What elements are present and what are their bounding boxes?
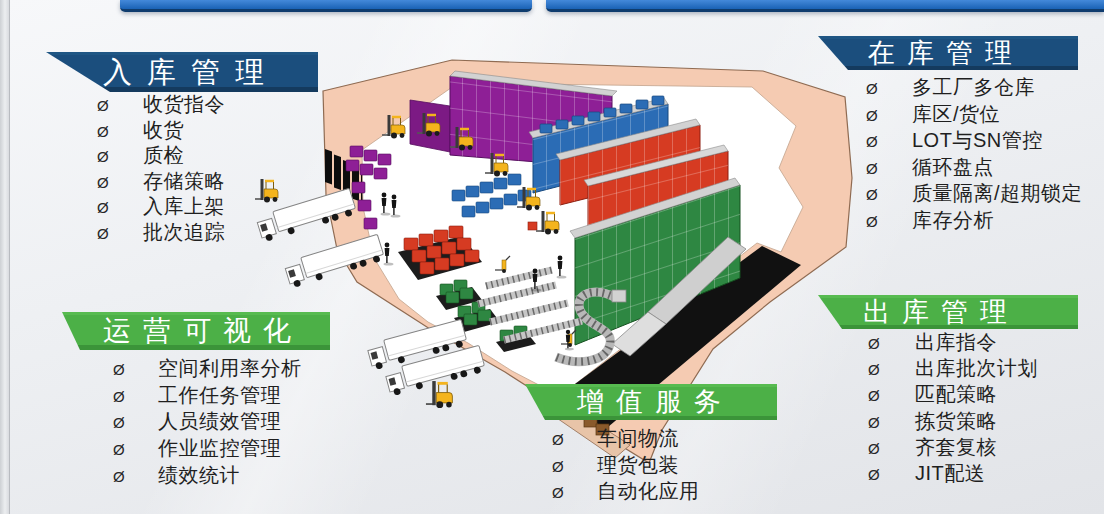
list-item-label: 收货 — [143, 119, 184, 141]
bullet-icon: Ø — [97, 93, 143, 119]
bullet-icon: Ø — [866, 129, 912, 156]
panel-outbound-list: Ø出库指令 Ø出库批次计划 Ø匹配策略 Ø拣货策略 Ø齐套复核 ØJIT配送 — [868, 329, 1038, 486]
list-item-label: 入库上架 — [143, 195, 225, 217]
bullet-icon: Ø — [868, 410, 915, 436]
bullet-icon: Ø — [113, 464, 158, 491]
bullet-icon: Ø — [97, 119, 143, 145]
list-item-label: 自动化应用 — [597, 480, 700, 502]
list-item: Ø出库指令 — [868, 329, 1038, 355]
bullet-icon: Ø — [113, 357, 158, 384]
panel-value-added-header: 增值服务 — [525, 384, 777, 420]
bullet-icon: Ø — [868, 462, 915, 488]
list-item: Ø多工厂多仓库 — [866, 74, 1082, 101]
bullet-icon: Ø — [552, 427, 597, 454]
panel-outbound-title: 出库管理 — [863, 297, 1019, 327]
pallets-purple — [346, 146, 391, 229]
rack-green — [570, 178, 746, 356]
list-item-label: 车间物流 — [597, 427, 679, 449]
list-item: Ø绩效统计 — [113, 462, 302, 489]
slide-left-edge — [0, 0, 10, 514]
warehouse-floor — [362, 83, 803, 396]
list-item: Ø理货包装 — [552, 452, 700, 479]
panel-inbound-title: 入库管理 — [103, 56, 279, 88]
list-item-label: 质量隔离/超期锁定 — [912, 182, 1082, 204]
list-item: Ø车间物流 — [552, 425, 700, 452]
list-item: Ø库存分析 — [866, 207, 1082, 234]
bullet-icon: Ø — [113, 384, 158, 411]
list-item-label: 库区/货位 — [912, 103, 1000, 125]
list-item: ØJIT配送 — [868, 460, 1038, 486]
panel-value-added-title: 增值服务 — [577, 387, 733, 417]
panel-inbound-header: 入库管理 — [46, 52, 318, 92]
bullet-icon: Ø — [113, 410, 158, 437]
list-item-label: 齐套复核 — [915, 436, 997, 458]
list-item: Ø拣货策略 — [868, 408, 1038, 434]
bullet-icon: Ø — [552, 454, 597, 481]
bullet-icon: Ø — [868, 357, 915, 383]
list-item-label: 收货指令 — [143, 93, 225, 115]
panel-operations-list: Ø空间利用率分析 Ø工作任务管理 Ø人员绩效管理 Ø作业监控管理 Ø绩效统计 — [113, 355, 302, 488]
list-item-label: 存储策略 — [143, 170, 225, 192]
bullet-icon: Ø — [866, 182, 912, 209]
list-item-label: 批次追踪 — [143, 221, 225, 243]
slide-canvas: 入库管理 Ø收货指令 Ø收货 Ø质检 Ø存储策略 Ø入库上架 Ø批次追踪 在库管… — [0, 0, 1104, 514]
list-item: Ø空间利用率分析 — [113, 355, 302, 382]
dock-doors — [325, 149, 368, 207]
bullet-icon: Ø — [552, 480, 597, 507]
panel-operations-title: 运营可视化 — [103, 315, 303, 346]
list-item-label: 出库指令 — [915, 331, 997, 353]
list-item-label: JIT配送 — [915, 462, 985, 484]
bullet-icon: Ø — [866, 103, 912, 130]
panel-inbound-list: Ø收货指令 Ø收货 Ø质检 Ø存储策略 Ø入库上架 Ø批次追踪 — [97, 92, 225, 246]
list-item: Ø循环盘点 — [866, 154, 1082, 181]
list-item-label: 库存分析 — [912, 209, 994, 231]
bullet-icon: Ø — [866, 209, 912, 236]
list-item: Ø库区/货位 — [866, 101, 1082, 128]
panel-in-stock-list: Ø多工厂多仓库 Ø库区/货位 ØLOT与SN管控 Ø循环盘点 Ø质量隔离/超期锁… — [866, 74, 1082, 234]
bullet-icon: Ø — [868, 436, 915, 462]
top-banner-left — [120, 0, 532, 12]
list-item-label: 出库批次计划 — [915, 357, 1038, 379]
pallets-blue — [452, 174, 531, 217]
rack-blue — [529, 96, 668, 193]
pallets-red — [398, 226, 482, 280]
bullet-icon: Ø — [868, 331, 915, 357]
bullet-icon: Ø — [866, 76, 912, 103]
list-item: Ø质检 — [97, 143, 225, 169]
list-item: Ø出库批次计划 — [868, 355, 1038, 381]
panel-in-stock-header: 在库管理 — [818, 36, 1078, 70]
list-item-label: 多工厂多仓库 — [912, 76, 1035, 98]
list-item-label: 工作任务管理 — [158, 384, 281, 406]
workers — [381, 193, 574, 351]
bullet-icon: Ø — [97, 221, 143, 247]
list-item: Ø作业监控管理 — [113, 435, 302, 462]
pallets-green — [436, 280, 536, 352]
list-item-label: 绩效统计 — [158, 464, 240, 486]
list-item-label: LOT与SN管控 — [912, 129, 1043, 151]
panel-operations-header: 运营可视化 — [62, 312, 330, 350]
bullet-icon: Ø — [113, 437, 158, 464]
list-item: Ø入库上架 — [97, 194, 225, 220]
list-item: Ø齐套复核 — [868, 434, 1038, 460]
top-banner-right — [546, 0, 1104, 12]
rack-red — [556, 119, 728, 231]
bullet-icon: Ø — [868, 383, 915, 409]
rack-purple — [410, 71, 617, 168]
list-item-label: 人员绩效管理 — [158, 410, 281, 432]
rack-ramp — [648, 237, 746, 324]
bullet-icon: Ø — [97, 144, 143, 170]
panel-value-added-list: Ø车间物流 Ø理货包装 Ø自动化应用 — [552, 425, 700, 505]
list-item-label: 拣货策略 — [915, 410, 997, 432]
list-item: ØLOT与SN管控 — [866, 127, 1082, 154]
list-item: Ø质量隔离/超期锁定 — [866, 180, 1082, 207]
list-item: Ø自动化应用 — [552, 478, 700, 505]
forklifts — [255, 113, 576, 408]
list-item: Ø工作任务管理 — [113, 382, 302, 409]
list-item-label: 循环盘点 — [912, 156, 994, 178]
list-item-label: 作业监控管理 — [158, 437, 281, 459]
bullet-icon: Ø — [97, 195, 143, 221]
conveyor — [478, 270, 626, 362]
panel-outbound-header: 出库管理 — [818, 295, 1078, 329]
list-item-label: 质检 — [143, 144, 184, 166]
list-item: Ø匹配策略 — [868, 381, 1038, 407]
list-item-label: 匹配策略 — [915, 383, 997, 405]
list-item: Ø批次追踪 — [97, 220, 225, 246]
list-item: Ø收货 — [97, 118, 225, 144]
list-item-label: 理货包装 — [597, 454, 679, 476]
bullet-icon: Ø — [97, 170, 143, 196]
list-item: Ø人员绩效管理 — [113, 408, 302, 435]
list-item-label: 空间利用率分析 — [158, 357, 302, 379]
list-item: Ø存储策略 — [97, 169, 225, 195]
list-item: Ø收货指令 — [97, 92, 225, 118]
panel-in-stock-title: 在库管理 — [868, 38, 1024, 68]
bullet-icon: Ø — [866, 156, 912, 183]
